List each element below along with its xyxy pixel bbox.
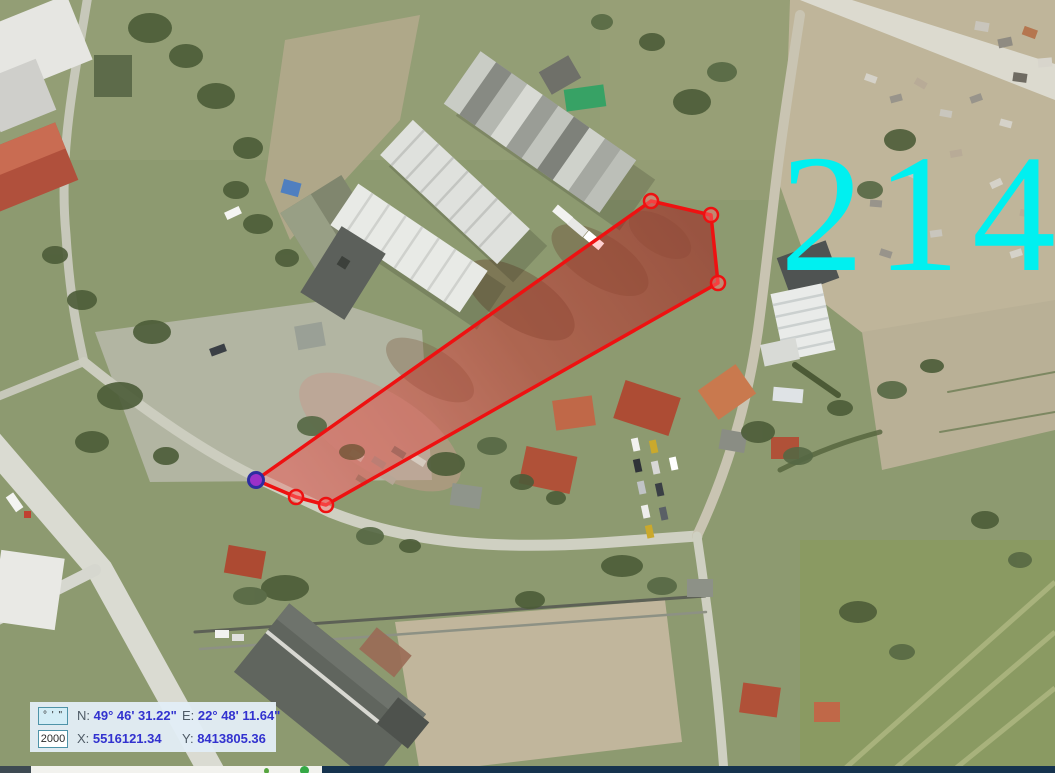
parcel-polygon-overlay[interactable] <box>0 0 1055 773</box>
polygon-vertex-handle[interactable] <box>704 208 718 222</box>
polygon-vertex-handle[interactable] <box>289 490 303 504</box>
taskbar-app-icon-small[interactable] <box>264 768 269 773</box>
geo-coordinate-row: ° ' " N: 49° 46' 31.22" E: 22° 48' 11.64… <box>30 705 276 726</box>
map-viewport[interactable]: 214 ° ' " N: 49° 46' 31.22" E: 22° 48' 1… <box>0 0 1055 773</box>
longitude-readout: E: 22° 48' 11.64" <box>182 708 280 723</box>
taskbar-app-icon[interactable] <box>300 766 309 773</box>
polygon-vertex-handle[interactable] <box>711 276 725 290</box>
longitude-value: 22° 48' 11.64" <box>198 708 280 723</box>
y-label: Y: <box>182 731 194 746</box>
y-coordinate-readout: Y: 8413805.36 <box>182 731 266 746</box>
latitude-readout: N: 49° 46' 31.22" <box>77 708 173 723</box>
x-coordinate-readout: X: 5516121.34 <box>77 731 173 746</box>
y-value: 8413805.36 <box>197 731 266 746</box>
parcel-number-label: 214 <box>780 130 1055 298</box>
taskbar-app-segment[interactable] <box>31 766 322 773</box>
polygon-vertex-handle-selected[interactable] <box>249 473 264 488</box>
parcel-polygon[interactable] <box>256 201 718 505</box>
polygon-vertex-handle[interactable] <box>319 498 333 512</box>
polygon-vertex-handle[interactable] <box>644 194 658 208</box>
dms-format-button[interactable]: ° ' " <box>38 707 68 725</box>
taskbar[interactable] <box>0 766 1055 773</box>
longitude-label: E: <box>182 708 194 723</box>
x-value: 5516121.34 <box>93 731 162 746</box>
taskbar-start-segment[interactable] <box>0 766 31 773</box>
x-label: X: <box>77 731 89 746</box>
coordinate-status-panel: ° ' " N: 49° 46' 31.22" E: 22° 48' 11.64… <box>30 702 276 752</box>
latitude-value: 49° 46' 31.22" <box>94 708 177 723</box>
latitude-label: N: <box>77 708 90 723</box>
projected-coordinate-row: 2000 X: 5516121.34 Y: 8413805.36 <box>30 728 276 749</box>
scale-input[interactable]: 2000 <box>38 730 68 748</box>
taskbar-main-segment[interactable] <box>322 766 1055 773</box>
